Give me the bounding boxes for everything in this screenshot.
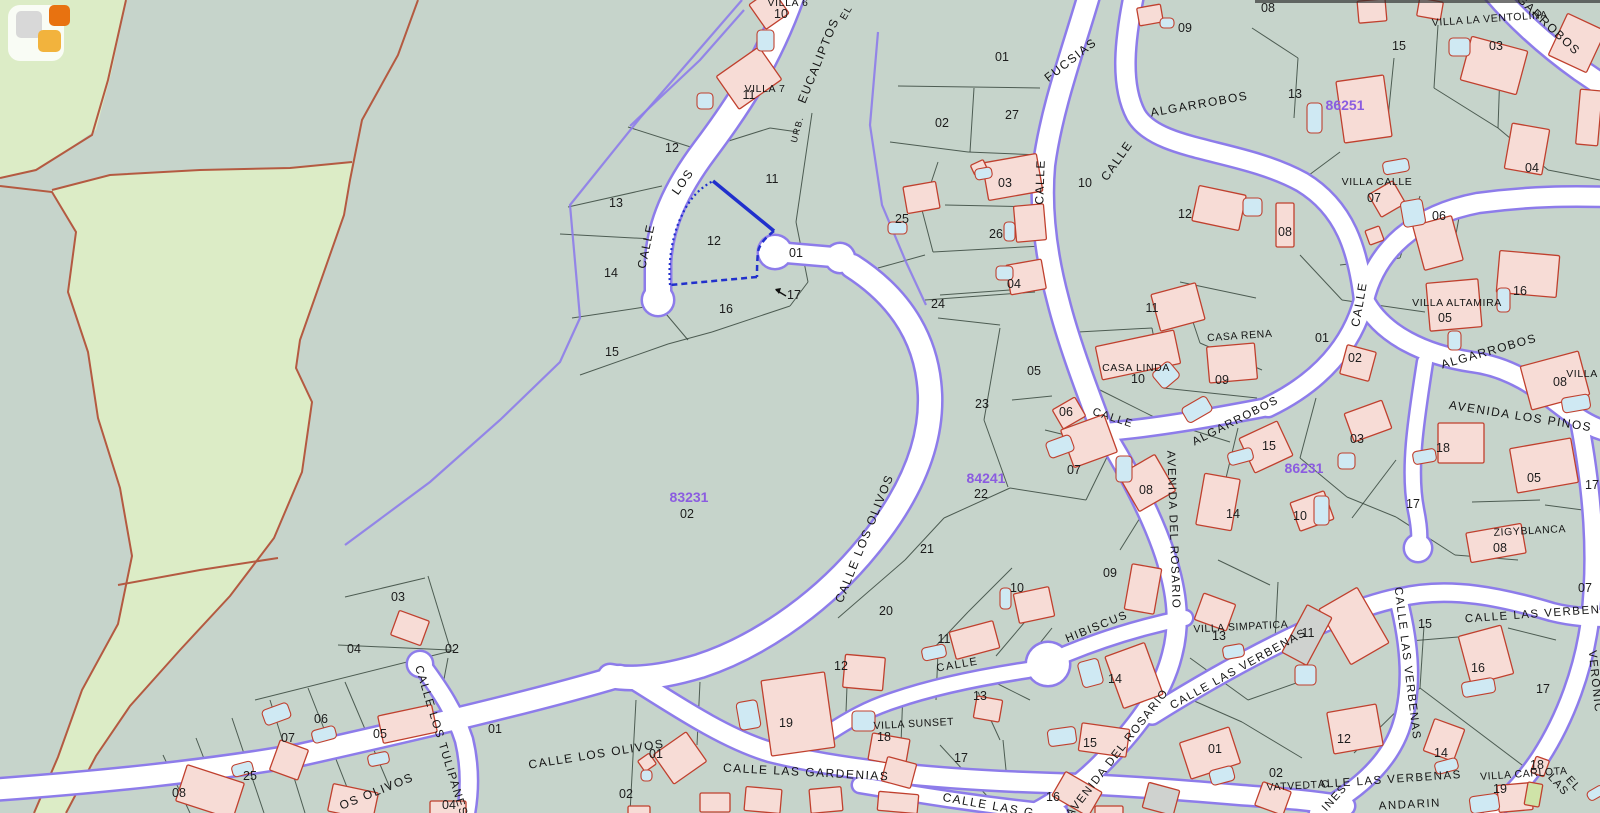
logo-amber-square [38,30,61,52]
parcel-number-label: 10 [774,7,788,21]
parcel-number-label: 18 [1436,441,1450,455]
parcel-number-label: 11 [743,88,756,102]
parcel-number-label: 03 [391,590,405,604]
parcel-number-label: 02 [1348,351,1362,365]
parcel-number-label: 15 [1392,39,1406,53]
parcel-number-label: 07 [1367,191,1381,205]
logo-orange-square [49,5,70,26]
parcel-number-label: 25 [895,212,909,226]
map-canvas[interactable]: EUCALIPTOSCALLELOSELURB.FUCSIASCALLECALL… [0,0,1600,813]
parcel-number-label: 02 [935,116,949,130]
buildings-layer [176,0,1600,813]
parcel-number-label: 10 [1131,372,1145,386]
parcel-number-label: 19 [1493,782,1507,796]
parcel-number-label: 01 [488,722,502,736]
parcel-number-label: 12 [665,141,679,155]
parcel-number-label: 14 [1434,746,1448,760]
parcel-number-label: 17 [787,288,801,302]
street-label: ALGARROBOS [1149,89,1249,120]
parcel-number-label: 02 [445,642,459,656]
app-logo[interactable] [8,5,64,61]
parcel-number-label: 14 [1226,507,1240,521]
parcel-number-label: 02 [619,787,633,801]
villa-name-label: VILLA ALTAMIRA [1412,297,1502,309]
parcel-number-label: 10 [1010,581,1024,595]
parcel-number-label: 13 [973,689,987,703]
parcel-number-label: 14 [604,266,618,280]
parcel-number-label: 01 [995,50,1009,64]
parcel-number-label: 19 [779,716,793,730]
parcel-number-label: 01 [1315,331,1329,345]
parcel-number-label: 15 [1083,736,1097,750]
parcel-number-label: 21 [920,542,934,556]
parcel-number-label: 24 [931,297,945,311]
block-number-label: 86231 [1285,460,1324,476]
parcel-number-label: 13 [609,196,623,210]
parcel-number-label: 05 [373,727,387,741]
parcel-number-label: 08 [1139,483,1153,497]
villa-name-label: VILLA CALLE [1342,176,1413,188]
parcel-number-label: 07 [281,731,295,745]
parcel-number-label: 03 [998,176,1012,190]
parcel-number-label: 16 [1046,790,1060,804]
villa-name-label: CASA RENA [1207,328,1273,345]
parcel-number-label: 20 [879,604,893,618]
block-number-label: 83231 [670,489,709,505]
parcel-number-label: 17 [1536,682,1550,696]
parcel-number-label: 03 [1489,39,1503,53]
street-label: CALLE [1032,159,1048,205]
street-label: CALLE [1098,138,1136,183]
parcel-number-label: 08 [1261,1,1275,15]
parcel-number-label: 08 [172,786,186,800]
parcel-number-label: 09 [1178,21,1192,35]
street-label: CALLE LAS VERBENAS [1168,627,1309,712]
parcel-number-label: 12 [707,234,721,248]
parcel-number-label: 23 [975,397,989,411]
parcel-number-label: 10 [1078,176,1092,190]
parcel-number-label: 27 [1005,108,1019,122]
parcel-number-label: 22 [974,487,988,501]
parcel-number-label: 05 [1027,364,1041,378]
parcel-number-label: 04 [347,642,361,656]
parcel-number-label: 11 [766,172,779,186]
parcel-number-label: 17 [1406,497,1420,511]
parcel-number-label: 15 [1262,439,1276,453]
parcel-number-label: 15 [1418,617,1432,631]
map-tile-edge [1255,0,1600,3]
parcel-number-label: 02 [1269,766,1283,780]
parcel-number-label: 11 [1146,301,1159,315]
parcel-number-label: 15 [605,345,619,359]
parcel-number-label: 17 [954,751,968,765]
parcel-number-label: 16 [1471,661,1485,675]
parcel-number-label: 02 [680,507,694,521]
parcel-number-label: 06 [314,712,328,726]
parcel-number-label: 18 [1530,758,1544,772]
street-label: EUCALIPTOS [795,16,842,105]
parcel-number-label: 09 [1215,373,1229,387]
parcel-number-label: 04 [442,798,456,812]
parcel-number-label: 25 [243,769,257,783]
parcel-number-label: 08 [1553,375,1567,389]
parcel-number-label: 12 [834,659,848,673]
parcel-number-label: 17 [1585,478,1599,492]
parcel-number-label: 26 [989,227,1003,241]
parcel-number-label: 18 [877,730,891,744]
parcel-number-label: 16 [719,302,733,316]
parcel-number-label: 14 [1108,672,1122,686]
parcel-number-label: 01 [649,747,663,761]
parcel-number-label: 13 [1288,87,1302,101]
street-label: ANDARIN [1378,797,1441,812]
villa-name-label: ZIGYBLANCA [1493,523,1566,539]
terrain-rustic-areas [0,0,352,813]
parcel-number-label: 12 [1178,207,1192,221]
parcel-number-label: 16 [1513,284,1527,298]
map-viewport[interactable]: EUCALIPTOSCALLELOSELURB.FUCSIASCALLECALL… [0,0,1600,813]
parcel-number-label: 05 [1438,311,1452,325]
parcel-number-label: 03 [1350,432,1364,446]
parcel-number-label: 04 [1007,277,1021,291]
parcel-number-label: 10 [1293,509,1307,523]
parcel-number-label: 01 [789,246,803,260]
parcel-number-label: 01 [1208,742,1222,756]
parcel-number-label: 11 [938,632,951,646]
parcel-number-label: 08 [1493,541,1507,555]
parcel-number-label: 09 [1103,566,1117,580]
street-label: URB. [789,115,806,144]
parcel-number-label: 07 [1067,463,1081,477]
parcel-number-label: 08 [1278,225,1292,239]
parcel-number-label: 07 [1578,581,1592,595]
parcel-number-label: 04 [1525,161,1539,175]
block-number-label: 86251 [1326,97,1365,113]
parcel-number-label: 13 [1212,629,1226,643]
parcel-number-label: 05 [1527,471,1541,485]
parcel-number-label: 06 [1059,405,1073,419]
parcel-number-label: 06 [1432,209,1446,223]
parcel-number-label: 11 [1302,626,1315,640]
street-label: VERÓNIC [1586,650,1600,714]
street-label: EL [838,3,855,22]
parcel-number-label: 12 [1337,732,1351,746]
block-number-label: 84241 [967,470,1006,486]
villa-name-label: VILLA [1566,368,1598,380]
